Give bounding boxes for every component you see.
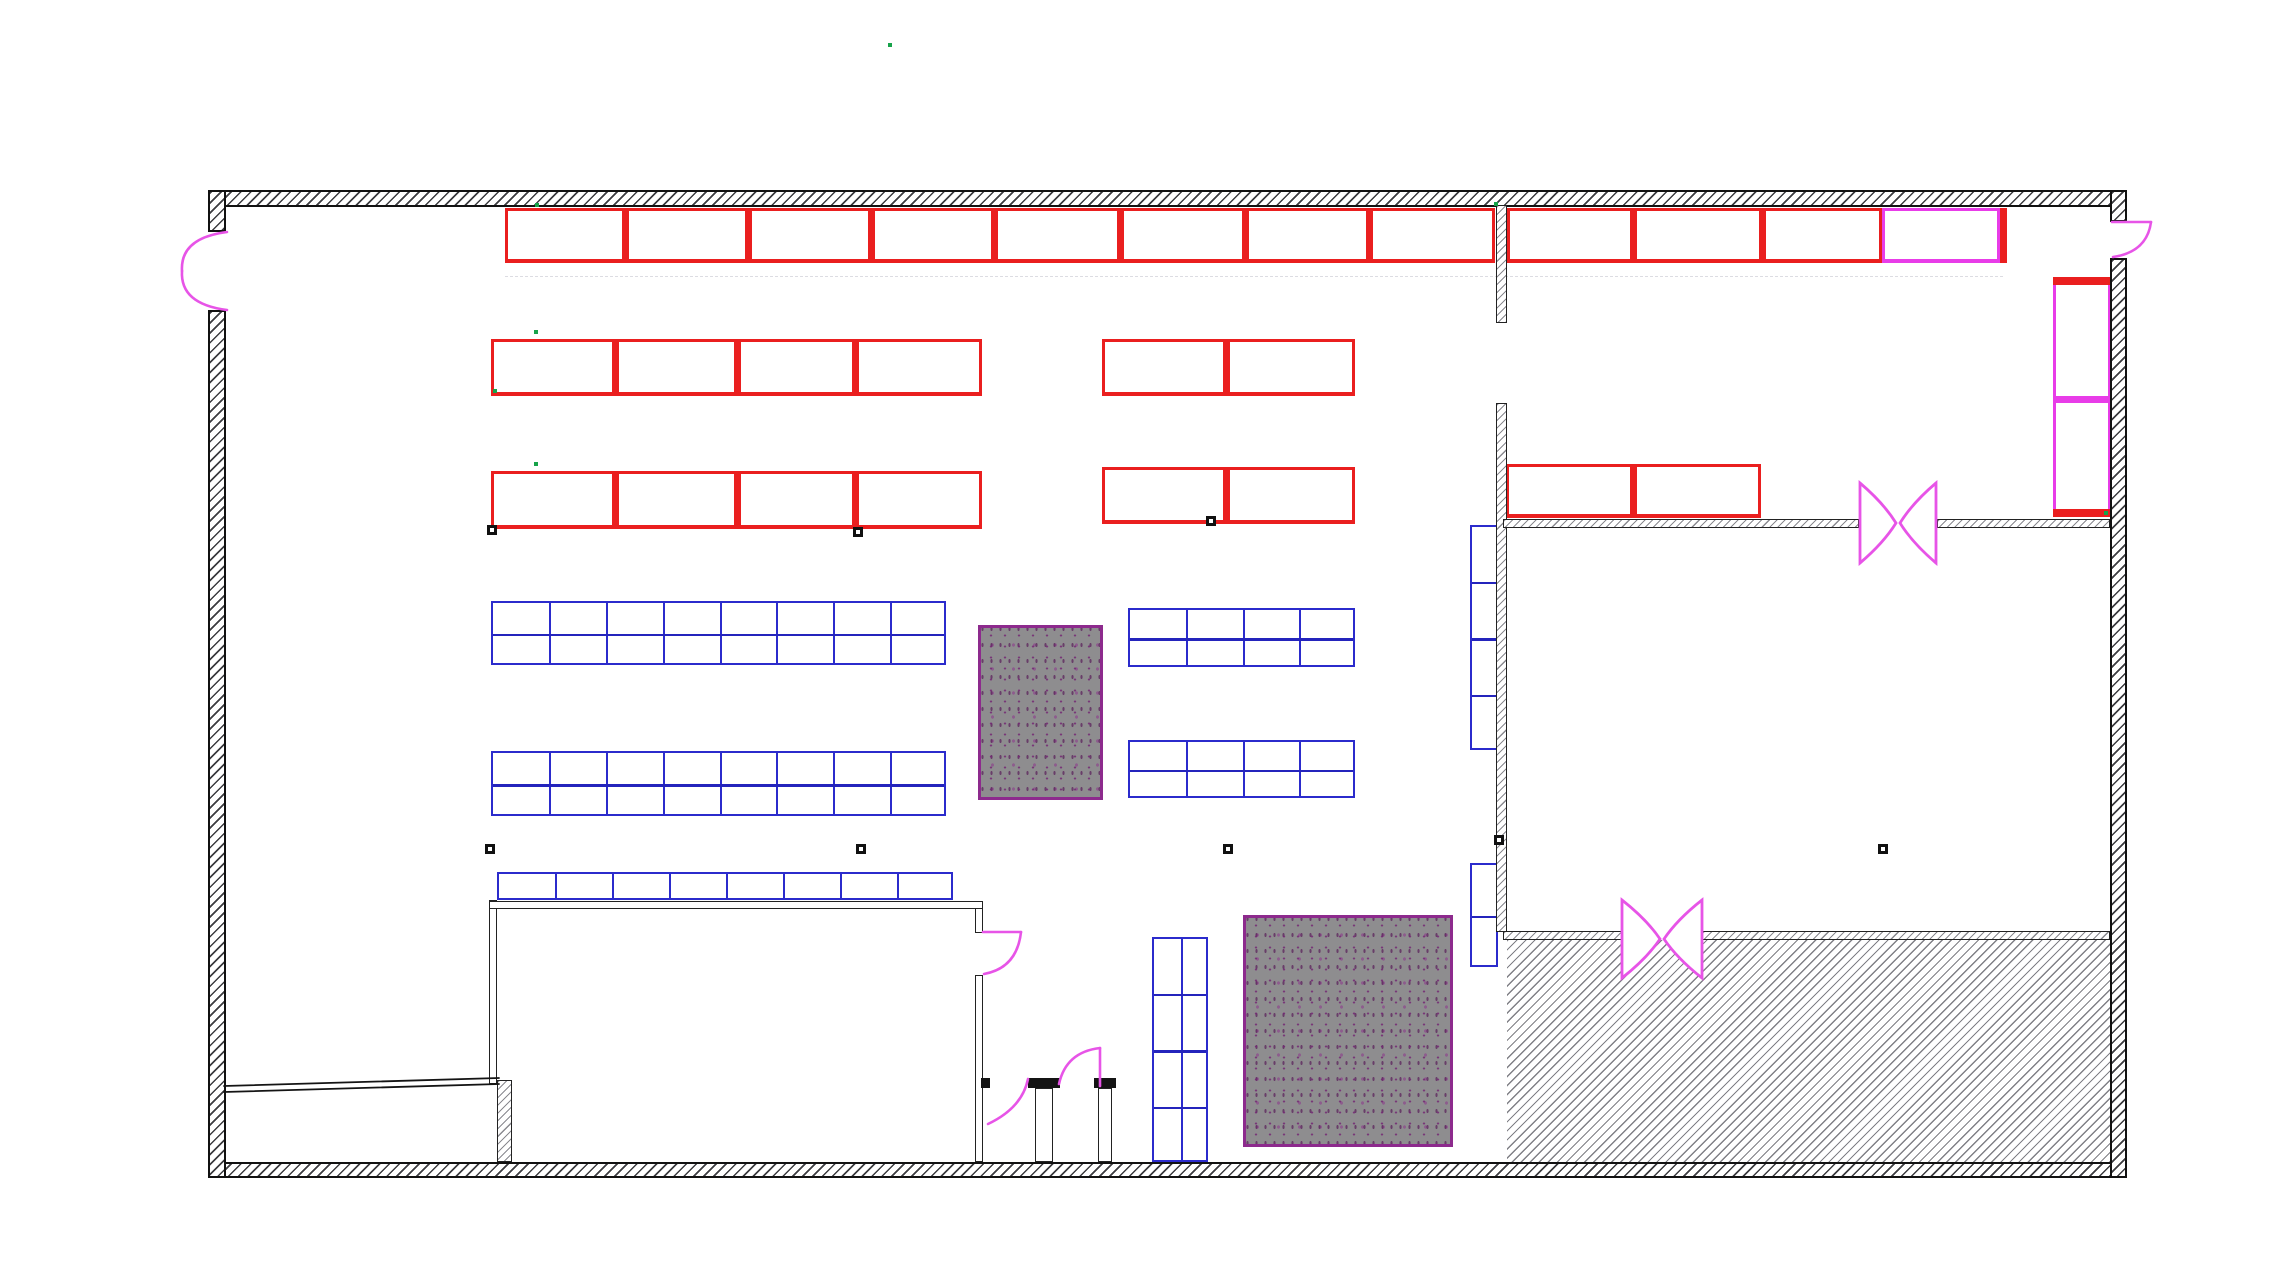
rack-row1-left-divider [622,210,629,260]
floor-plan-canvas [0,0,2270,1288]
blue-strip-lower-row-line [1472,916,1496,918]
blue-grid-half-row-col-line [726,874,728,898]
blue-grid-center-vertical [1152,937,1208,1162]
wall-left-below-door [208,310,226,1178]
blue-grid-row2-right-row-line [1130,770,1353,772]
green-reference-mark [493,389,497,393]
rack-row1-end-bay [1882,208,2000,263]
vestibule-cap-left [1028,1078,1060,1088]
vestibule-post-left [1035,1088,1053,1162]
blue-strip-upper-row-line [1472,695,1496,697]
entry-door-left-lower-leaf [182,271,227,310]
office-wall-right-upper [975,908,983,933]
wall-top [208,190,2127,207]
smallroom-right-wall [497,1080,512,1162]
partition-h1-left [1503,519,1859,528]
blue-grid-row2-left [491,751,946,816]
rack-row2-right [1102,339,1355,396]
partition-h2-right [1702,931,2110,940]
vestibule-post-right [1098,1088,1112,1162]
vestibule-door-left-arc [988,1079,1028,1124]
rack-row3-right-divider [1223,469,1230,521]
blue-grid-half-row-col-line [669,874,671,898]
wall-right-above-door [2110,190,2127,222]
smallroom-top-wall-inner [224,1084,499,1092]
green-reference-mark [534,330,538,334]
wall-right-below-door [2110,258,2127,1178]
blue-grid-half-row-col-line [612,874,614,898]
grid-node-marker [487,525,497,535]
blue-grid-half-row-col-line [897,874,899,898]
grid-node-marker [1223,844,1233,854]
grid-node-marker [1878,844,1888,854]
blue-grid-center-vertical-row-line [1154,1050,1206,1052]
rack-row2-left [491,339,982,396]
rack-row1-left [505,208,1495,263]
rack-row3-far-right [1506,464,1761,518]
rack-row1-right-divider [1630,210,1637,260]
office-wall-left [489,900,497,1084]
blue-grid-row2-right [1128,740,1355,798]
rack-row3-right [1102,467,1355,524]
rack-row3-left-divider [734,473,741,526]
grid-node-marker [856,844,866,854]
office-wall-cap [981,1078,990,1088]
rack-row2-right-divider [1223,341,1230,393]
rack-row1-left-divider [1242,210,1249,260]
blue-grid-half-row-col-line [555,874,557,898]
double-action-door-1-right-leaf [1900,483,1936,563]
door-top-right-arc [2113,222,2151,257]
hatched-floor-area [1507,940,2110,1162]
blue-grid-center-vertical-row-line [1154,994,1206,996]
rack-row1-left-divider [1366,210,1373,260]
gray-mat-large [1243,915,1453,1147]
rack-row3-left [491,471,982,529]
vestibule-cap-right [1094,1078,1116,1088]
blue-grid-row1-right-row-line [1130,638,1353,640]
blue-strip-upper-row-line [1472,638,1496,640]
grid-node-marker [485,844,495,854]
partition-h2-left [1503,931,1622,940]
double-action-door-1-left-leaf [1860,483,1896,563]
grid-node-marker [853,527,863,537]
rack-magenta-vertical-shelf [2053,277,2111,285]
rack-row1-left-divider [868,210,875,260]
blue-grid-row1-left-row-line [493,634,944,636]
wall-left-above-door [208,190,226,232]
grid-node-marker [1494,835,1504,845]
blue-grid-row1-left [491,601,946,665]
blue-grid-half-row-col-line [840,874,842,898]
smallroom-top-wall-outer [224,1078,499,1086]
grid-node-marker [1206,516,1216,526]
rack-row1-left-divider [745,210,752,260]
green-reference-mark [534,462,538,466]
gray-mat-small [978,625,1103,800]
rack-row2-left-divider [612,341,619,393]
office-wall-top [489,901,983,909]
column-grid-line [505,276,2003,277]
office-door-arc [984,932,1021,974]
rack-magenta-vertical-shelf [2053,396,2111,403]
blue-grid-half-row-col-line [783,874,785,898]
blue-strip-upper-row-line [1472,582,1496,584]
rack-row1-right [1507,208,1882,263]
green-reference-mark [535,203,539,207]
blue-strip-lower [1470,863,1498,967]
rack-row2-left-divider [734,341,741,393]
green-reference-mark [2104,511,2108,515]
rack-row1-end-cap [2000,208,2007,263]
rack-row3-left-divider [852,473,859,526]
partition-vertical-lower [1496,403,1507,932]
office-wall-right-lower [975,975,983,1162]
blue-grid-center-vertical-row-line [1154,1107,1206,1109]
rack-row3-left-divider [612,473,619,526]
blue-grid-row2-left-row-line [493,784,944,786]
partition-h1-right [1937,519,2110,528]
partition-vertical-upper [1496,205,1507,323]
wall-bottom [208,1162,2127,1178]
rack-magenta-vertical-shelf [2053,509,2111,517]
blue-strip-upper [1470,525,1498,750]
rack-row2-left-divider [852,341,859,393]
rack-row1-left-divider [991,210,998,260]
green-reference-mark [888,43,892,47]
green-reference-mark [1494,202,1498,206]
rack-row3-far-right-divider [1630,466,1637,515]
rack-row1-right-divider [1759,210,1766,260]
blue-grid-row1-right [1128,608,1355,667]
entry-door-left-upper-leaf [182,232,227,271]
rack-row1-left-divider [1117,210,1124,260]
blue-grid-half-row [497,872,953,900]
